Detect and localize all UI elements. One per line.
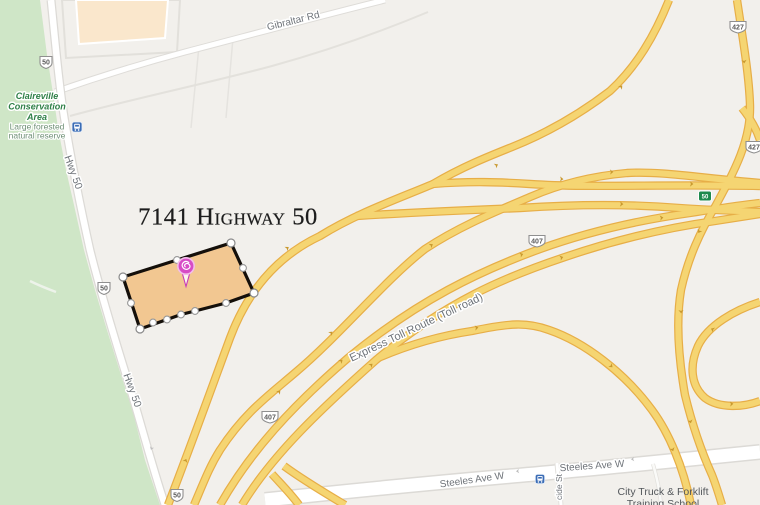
svg-text:cide St: cide St	[554, 473, 564, 500]
svg-text:Claireville: Claireville	[16, 91, 59, 101]
svg-text:Conservation: Conservation	[8, 102, 66, 112]
svg-text:427: 427	[748, 144, 760, 151]
svg-text:407: 407	[264, 414, 276, 421]
svg-text:50: 50	[42, 60, 50, 67]
svg-text:427: 427	[732, 24, 744, 31]
svg-text:Area: Area	[26, 112, 47, 122]
svg-text:50: 50	[173, 493, 181, 500]
svg-text:City Truck & Forklift: City Truck & Forklift	[617, 486, 708, 498]
svg-text:407: 407	[531, 238, 543, 245]
svg-text:50: 50	[100, 286, 108, 293]
svg-text:7141 Highway 50: 7141 Highway 50	[138, 204, 318, 231]
svg-text:natural reserve: natural reserve	[9, 131, 66, 141]
svg-text:Training School: Training School	[627, 498, 700, 505]
svg-text:50: 50	[702, 194, 709, 200]
